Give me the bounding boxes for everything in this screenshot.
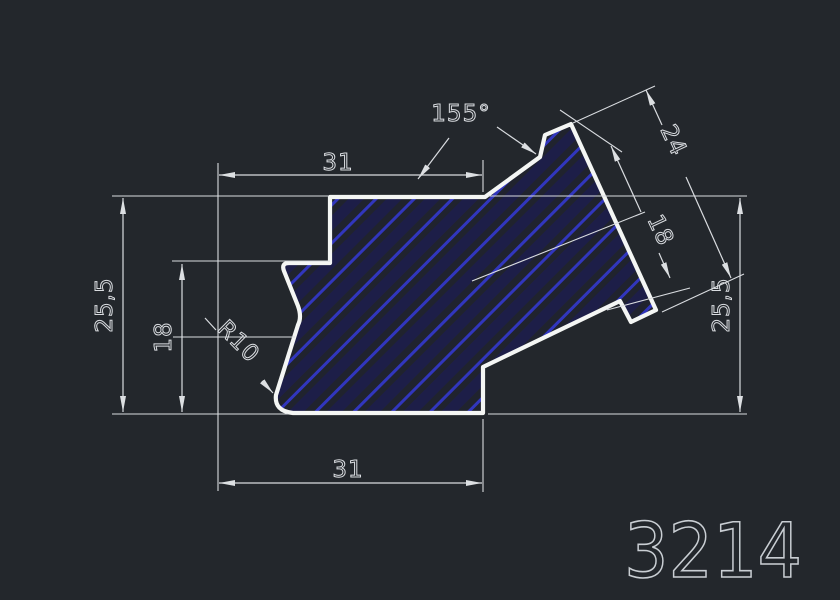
- dimension-text: 25,5: [709, 277, 735, 332]
- dimension-line: [611, 146, 641, 212]
- leader-line: [262, 381, 273, 393]
- dimension-line: [659, 253, 670, 278]
- cad-canvas[interactable]: 31 31 25,5 18 25,5 24 18 155°: [0, 0, 840, 600]
- dimension-text: 25,5: [92, 277, 118, 332]
- extension-line: [573, 86, 655, 123]
- dimension-text: 18: [151, 321, 177, 352]
- dim-left-height[interactable]: 25,5: [92, 198, 123, 412]
- leader-line: [497, 127, 536, 154]
- dimension-text: 24: [655, 121, 692, 160]
- dim-fillet-radius[interactable]: R10: [205, 315, 273, 393]
- dim-notch-height[interactable]: 18: [151, 264, 182, 412]
- dim-right-height[interactable]: 25,5: [709, 198, 740, 412]
- dim-top-width[interactable]: 31: [219, 150, 482, 176]
- dimension-text: 18: [642, 211, 679, 250]
- dimension-text: 155°: [431, 101, 490, 127]
- dimension-text: R10: [212, 315, 265, 368]
- dimension-line: [686, 177, 731, 278]
- leader-line: [418, 138, 449, 179]
- dim-bend-angle[interactable]: 155°: [418, 101, 536, 179]
- dimension-line: [646, 90, 662, 125]
- dim-bottom-width[interactable]: 31: [219, 457, 482, 483]
- dim-flange-outer[interactable]: 24: [646, 90, 731, 278]
- dimension-text: 31: [322, 150, 353, 176]
- dimension-text: 31: [332, 457, 363, 483]
- leader-line: [205, 318, 216, 330]
- cad-viewport[interactable]: 31 31 25,5 18 25,5 24 18 155°: [0, 0, 840, 600]
- part-number-text[interactable]: 3214: [624, 506, 802, 595]
